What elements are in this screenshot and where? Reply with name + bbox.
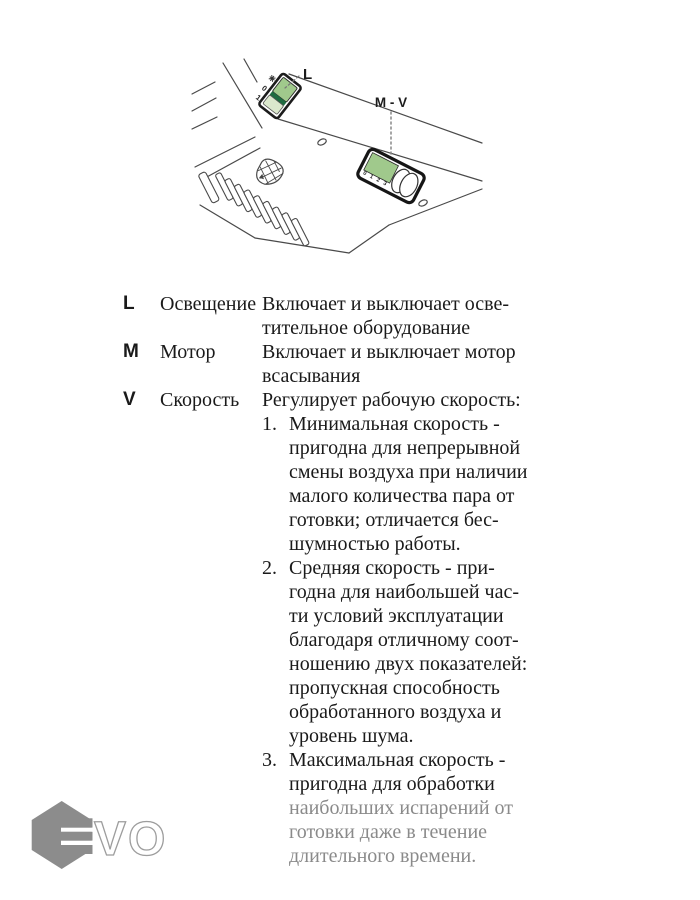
list-text: Минимальная скорость - пригодна для непр… <box>289 412 563 556</box>
list-text: Средняя скорость - при- годна для наибол… <box>289 556 563 748</box>
wall-lines <box>192 59 262 129</box>
list-item: 3. Максимальная скорость - пригодна для … <box>262 748 563 868</box>
faded-text: наибольших испарений от готовки даже в т… <box>289 797 513 867</box>
lamp-icon <box>253 156 286 190</box>
control-row-light: L Освещение Включает и выключает осве- т… <box>123 292 563 340</box>
logo-letter-e <box>61 818 96 854</box>
l-switch-label: L <box>303 66 312 83</box>
hood-diagram: 0 1 0 1 2 3 L M - V <box>185 48 485 268</box>
motor-speed-slider[interactable]: 0 1 2 3 <box>356 148 426 205</box>
control-key: M <box>123 340 160 364</box>
control-name: Мотор <box>160 340 262 364</box>
control-description: Включает и выключает осве- тительное обо… <box>262 292 563 340</box>
list-number: 3. <box>262 748 289 772</box>
control-row-speed: V Скорость Регулирует рабочую скорость: <box>123 388 563 412</box>
screw-hole <box>418 199 428 208</box>
hood-body <box>195 74 482 253</box>
logo-vo-text: VO <box>94 813 167 866</box>
list-item: 2. Средняя скорость - при- годна для наи… <box>262 556 563 748</box>
manual-page: { "diagram": { "l_label": "L", "mv_label… <box>0 0 700 900</box>
control-name: Скорость <box>160 388 262 412</box>
filter-slats <box>198 171 310 246</box>
screw-hole <box>317 138 327 147</box>
mv-switch-label: M - V <box>375 95 407 110</box>
speed-modes-list: 1. Минимальная скорость - пригодна для н… <box>262 412 563 868</box>
control-key: L <box>123 292 160 316</box>
list-number: 1. <box>262 412 289 436</box>
control-row-motor: M Мотор Включает и выключает мотор всасы… <box>123 340 563 388</box>
list-text: Максимальная скорость - пригодна для обр… <box>289 748 563 868</box>
controls-description: L Освещение Включает и выключает осве- т… <box>123 292 563 868</box>
control-description: Включает и выключает мотор всасывания <box>262 340 563 388</box>
control-key: V <box>123 388 160 412</box>
list-item: 1. Минимальная скорость - пригодна для н… <box>262 412 563 556</box>
list-number: 2. <box>262 556 289 580</box>
control-description: Регулирует рабочую скорость: <box>262 388 563 412</box>
control-name: Освещение <box>160 292 262 316</box>
evo-logo: VO <box>26 796 256 886</box>
